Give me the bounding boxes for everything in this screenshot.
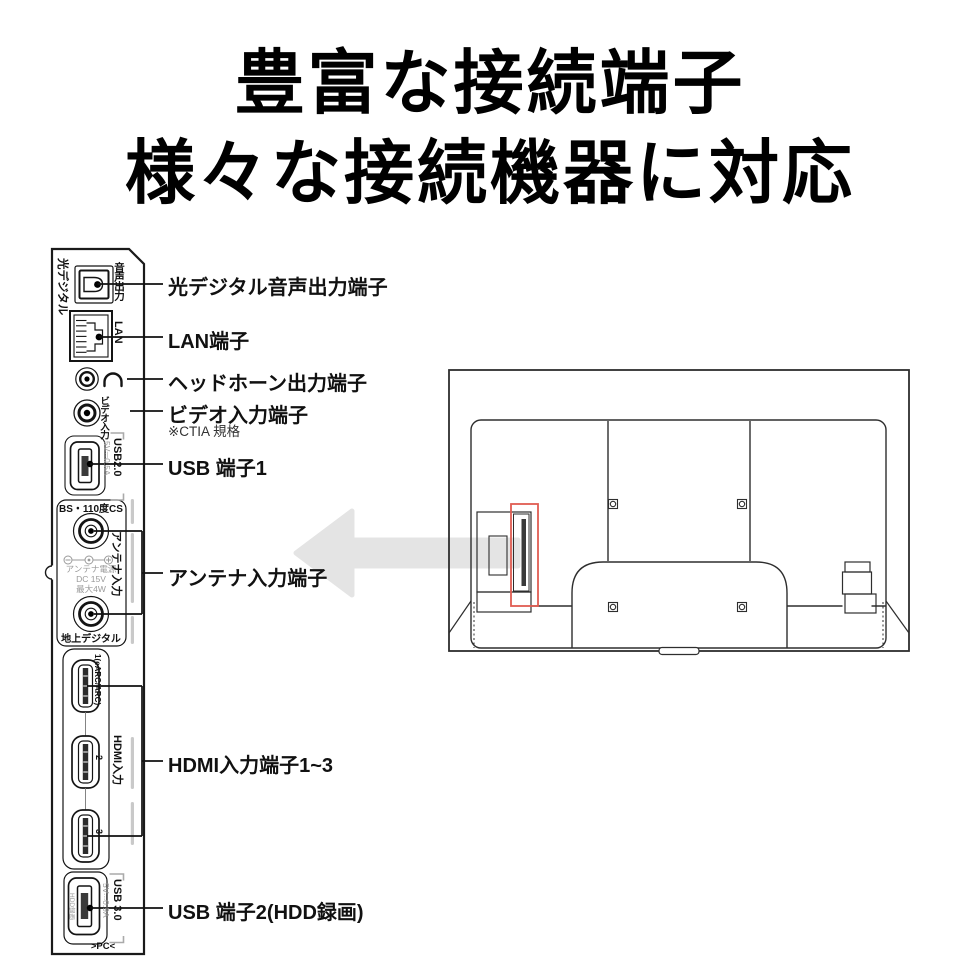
usb2-name-label: USB 3.0 bbox=[111, 879, 123, 937]
page-title-line1: 豊富な接続端子 bbox=[0, 48, 980, 118]
usb2-bottom-label: >PC< bbox=[86, 941, 120, 952]
video-port-label: ビデオ入力 bbox=[98, 396, 109, 436]
page-title-line2: 様々な接続機器に対応 bbox=[0, 138, 980, 208]
hdmi2-label: 2 bbox=[94, 755, 104, 769]
hdmi3-label: 3 bbox=[94, 829, 104, 843]
callout-video-note: ※CTIA 規格 bbox=[168, 420, 240, 440]
text-layer: 豊富な接続端子 様々な接続機器に対応 光デジタル音声出力端子 LAN端子 ヘッド… bbox=[0, 0, 980, 980]
usb2-inner-label: HDD録画 bbox=[68, 893, 78, 929]
antenna-top-label: BS・110度CS bbox=[56, 500, 126, 515]
usb2-spec-label: 5V⎓0.9A bbox=[100, 883, 111, 931]
optical-side-label: 光デジタル bbox=[55, 258, 71, 334]
optical-port-label: 音声出力 bbox=[112, 262, 127, 308]
hdmi-side-label: HDMI入力 bbox=[110, 735, 126, 795]
antenna-side-label: アンテナ入力 bbox=[109, 531, 125, 593]
callout-headphone: ヘッドホーン出力端子 bbox=[168, 367, 367, 396]
usb1-spec-label: 5V⎓0.5A bbox=[101, 441, 112, 491]
callout-hdmi: HDMI入力端子1~3 bbox=[168, 749, 333, 778]
page: 豊富な接続端子 様々な接続機器に対応 光デジタル音声出力端子 LAN端子 ヘッド… bbox=[0, 0, 980, 980]
hdmi1-label: 1(eARC/ARC) bbox=[93, 654, 102, 718]
antenna-bottom-label: 地上デジタル bbox=[56, 630, 126, 645]
callout-usb1: USB 端子1 bbox=[168, 452, 267, 481]
usb1-name-label: USB2.0 bbox=[111, 438, 123, 494]
callout-lan: LAN端子 bbox=[168, 325, 249, 354]
callout-optical: 光デジタル音声出力端子 bbox=[168, 271, 388, 300]
lan-port-label: LAN bbox=[112, 321, 124, 353]
callout-antenna: アンテナ入力端子 bbox=[168, 562, 327, 591]
callout-usb2: USB 端子2(HDD録画) bbox=[168, 896, 364, 925]
